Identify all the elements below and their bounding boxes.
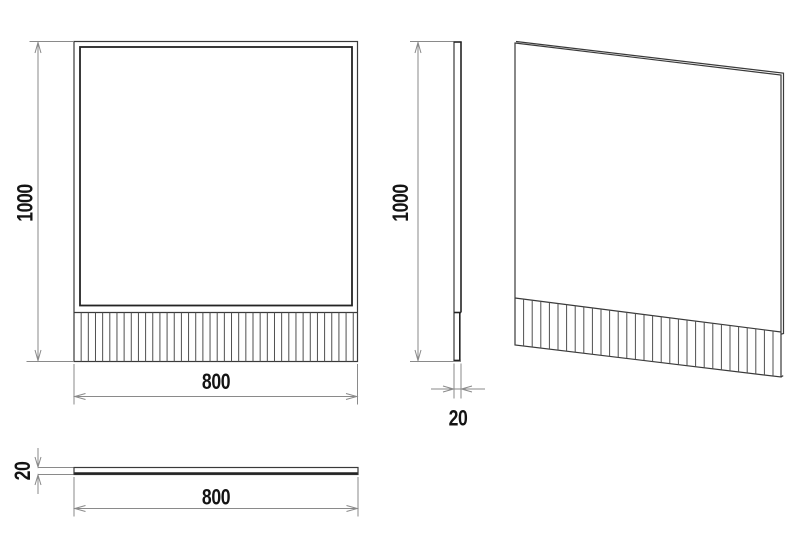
dim-label-top-thickness: 20 <box>11 461 35 480</box>
perspective-view <box>515 42 784 378</box>
dim-label-front-width: 800 <box>202 370 230 394</box>
dim-top-thickness: 20 <box>11 448 73 494</box>
front-view <box>74 42 358 362</box>
dim-side-height: 1000 <box>389 42 461 362</box>
dim-label-side-thickness: 20 <box>449 407 468 431</box>
dim-front-width: 800 <box>74 364 358 405</box>
dim-front-height: 1000 <box>14 42 74 362</box>
technical-drawing: 1000 800 1000 20 20 <box>0 0 800 559</box>
top-view <box>74 468 358 475</box>
dim-label-top-width: 800 <box>202 486 230 510</box>
dim-top-width: 800 <box>74 477 358 517</box>
dim-label-side-height: 1000 <box>389 184 413 222</box>
dim-label-front-height: 1000 <box>14 184 38 222</box>
side-view <box>454 42 462 362</box>
dim-side-thickness: 20 <box>431 364 485 432</box>
